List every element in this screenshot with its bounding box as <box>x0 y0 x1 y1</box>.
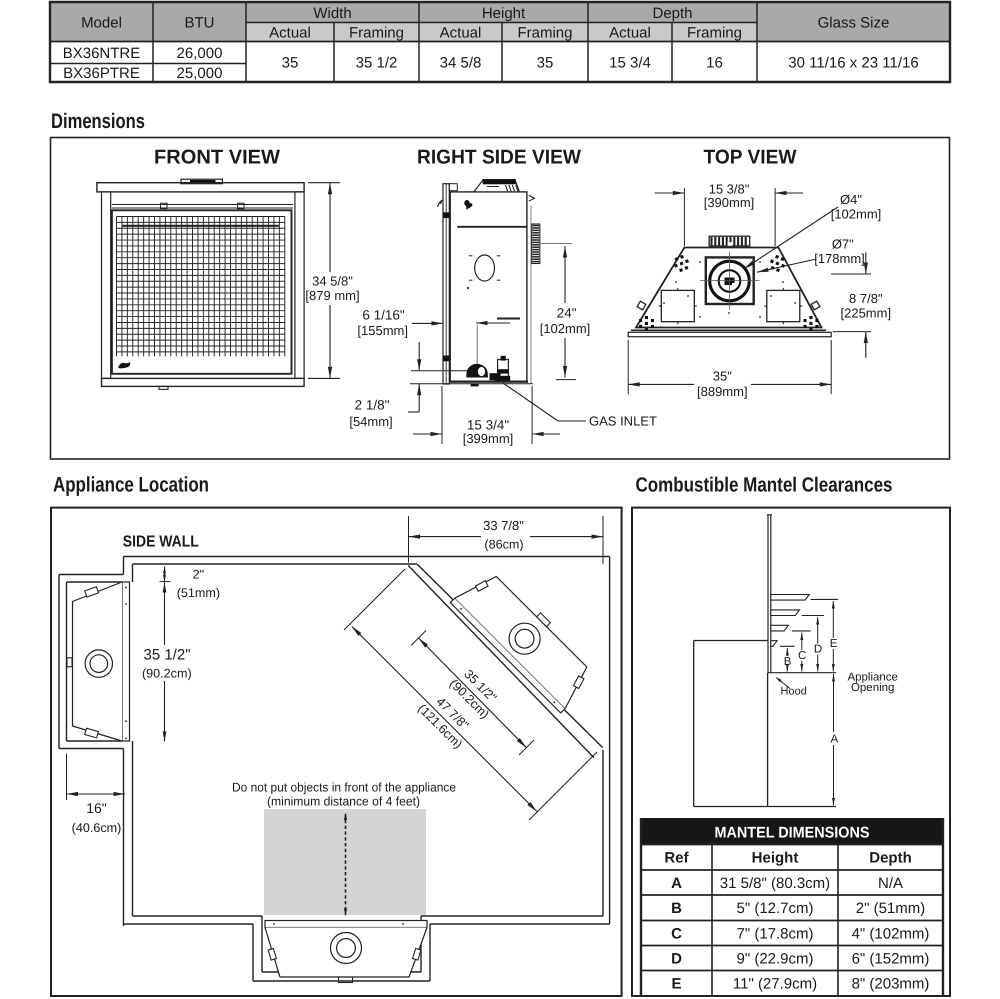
svg-text:30 11/16 x 23 11/16: 30 11/16 x 23 11/16 <box>788 55 918 72</box>
svg-text:MANTEL DIMENSIONS: MANTEL DIMENSIONS <box>715 825 870 842</box>
svg-text:E: E <box>830 638 838 650</box>
svg-text:(51mm): (51mm) <box>177 586 220 600</box>
svg-text:D: D <box>814 644 822 656</box>
svg-text:24": 24" <box>557 305 577 320</box>
svg-text:E: E <box>671 976 681 993</box>
svg-text:Combustible Mantel Clearances: Combustible Mantel Clearances <box>636 474 893 497</box>
svg-text:[889mm]: [889mm] <box>697 384 748 399</box>
svg-text:6" (152mm): 6" (152mm) <box>852 950 930 967</box>
svg-text:2" (51mm): 2" (51mm) <box>856 900 926 917</box>
svg-text:[879 mm]: [879 mm] <box>305 288 359 303</box>
svg-text:16": 16" <box>86 800 107 816</box>
svg-text:31 5/8" (80.3cm): 31 5/8" (80.3cm) <box>720 875 830 892</box>
svg-text:35: 35 <box>282 55 299 72</box>
svg-text:Framing: Framing <box>517 25 572 42</box>
svg-text:BTU: BTU <box>185 14 215 31</box>
svg-text:[225mm]: [225mm] <box>841 306 892 321</box>
svg-text:A: A <box>671 875 682 892</box>
svg-text:35 1/2: 35 1/2 <box>356 55 398 72</box>
svg-text:Appliance Location: Appliance Location <box>53 474 209 497</box>
svg-text:[178mm]: [178mm] <box>814 251 865 266</box>
svg-text:Depth: Depth <box>869 850 912 867</box>
svg-text:Height: Height <box>482 5 526 22</box>
svg-text:B: B <box>784 656 792 668</box>
svg-text:35 1/2": 35 1/2" <box>143 647 190 664</box>
svg-text:8 7/8": 8 7/8" <box>849 291 883 306</box>
svg-text:Width: Width <box>313 5 351 22</box>
svg-text:SIDE WALL: SIDE WALL <box>123 533 199 550</box>
svg-text:(86cm): (86cm) <box>484 538 523 552</box>
svg-text:C: C <box>671 925 682 942</box>
svg-text:Model: Model <box>81 14 122 31</box>
svg-text:Ø4": Ø4" <box>840 192 862 207</box>
svg-text:Opening: Opening <box>851 682 894 694</box>
svg-text:Dimensions: Dimensions <box>51 110 145 133</box>
svg-text:B: B <box>671 900 682 917</box>
svg-text:Ref: Ref <box>664 850 689 867</box>
svg-text:Ø7": Ø7" <box>832 237 854 252</box>
svg-text:34 5/8: 34 5/8 <box>440 55 482 72</box>
svg-text:8" (203mm): 8" (203mm) <box>852 976 930 993</box>
svg-text:26,000: 26,000 <box>177 45 223 62</box>
svg-text:9" (22.9cm): 9" (22.9cm) <box>736 950 813 967</box>
svg-text:Framing: Framing <box>349 25 404 42</box>
svg-text:(40.6cm): (40.6cm) <box>72 821 122 835</box>
svg-text:FRONT VIEW: FRONT VIEW <box>154 147 280 169</box>
svg-text:Actual: Actual <box>440 25 482 42</box>
svg-text:Depth: Depth <box>652 5 692 22</box>
svg-text:RIGHT SIDE VIEW: RIGHT SIDE VIEW <box>417 147 581 169</box>
svg-text:N/A: N/A <box>878 875 903 892</box>
svg-text:5" (12.7cm): 5" (12.7cm) <box>736 900 813 917</box>
svg-text:2": 2" <box>193 568 204 582</box>
svg-text:C: C <box>798 650 806 662</box>
svg-text:[54mm]: [54mm] <box>349 414 392 429</box>
svg-text:6 1/16": 6 1/16" <box>362 307 405 322</box>
svg-text:35: 35 <box>537 55 554 72</box>
svg-text:35": 35" <box>713 369 732 384</box>
svg-text:Glass Size: Glass Size <box>818 14 890 31</box>
svg-text:7" (17.8cm): 7" (17.8cm) <box>736 925 813 942</box>
svg-text:Do not put objects in front of: Do not put objects in front of the appli… <box>232 781 456 795</box>
svg-text:25,000: 25,000 <box>177 65 223 82</box>
svg-text:GAS INLET: GAS INLET <box>589 414 657 429</box>
svg-text:TOP VIEW: TOP VIEW <box>704 147 797 169</box>
svg-text:BX36PTRE: BX36PTRE <box>63 65 140 82</box>
svg-text:[102mm]: [102mm] <box>540 321 591 336</box>
svg-text:[102mm]: [102mm] <box>831 207 882 222</box>
svg-text:(90.2cm): (90.2cm) <box>142 667 192 681</box>
svg-text:33 7/8": 33 7/8" <box>483 518 524 533</box>
svg-text:15 3/4: 15 3/4 <box>609 55 651 72</box>
svg-text:D: D <box>671 950 682 967</box>
svg-text:11" (27.9cm): 11" (27.9cm) <box>733 976 817 993</box>
svg-text:Hood: Hood <box>781 686 807 698</box>
svg-text:Actual: Actual <box>269 25 311 42</box>
svg-text:(minimum distance of 4 feet): (minimum distance of 4 feet) <box>267 795 420 809</box>
svg-text:[390mm]: [390mm] <box>704 195 755 210</box>
svg-text:16: 16 <box>706 55 723 72</box>
svg-text:Framing: Framing <box>687 25 742 42</box>
svg-text:Actual: Actual <box>609 25 651 42</box>
svg-text:34 5/8": 34 5/8" <box>312 274 353 289</box>
svg-text:[399mm]: [399mm] <box>463 431 514 446</box>
svg-text:A: A <box>830 734 838 746</box>
svg-text:2 1/8": 2 1/8" <box>355 398 390 413</box>
svg-text:[155mm]: [155mm] <box>357 323 408 338</box>
svg-text:4" (102mm): 4" (102mm) <box>852 925 930 942</box>
svg-text:BX36NTRE: BX36NTRE <box>63 45 141 62</box>
svg-text:Height: Height <box>752 850 799 867</box>
